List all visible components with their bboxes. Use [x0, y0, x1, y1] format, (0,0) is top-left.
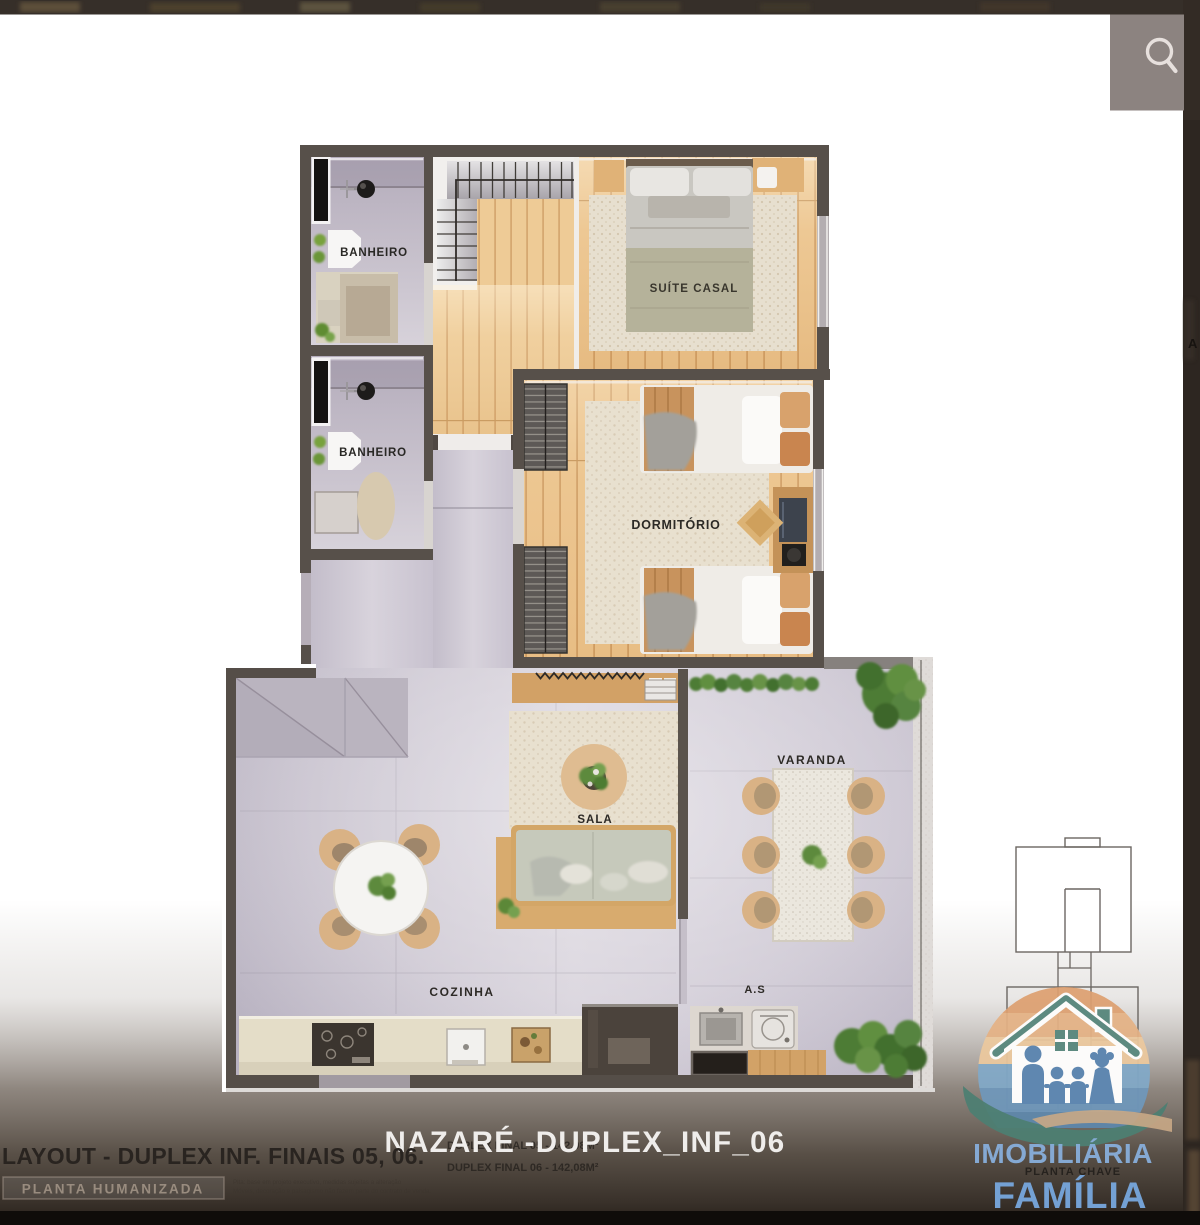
svg-text:BANHEIRO: BANHEIRO — [339, 447, 407, 459]
svg-text:Plta: base em projeto executiv: Plta: base em projeto executivo, medidas… — [233, 1179, 402, 1186]
svg-text:Móveis, decoração e paisagismo: Móveis, decoração e paisagismo não fazem… — [233, 1188, 431, 1195]
svg-text:VARANDA: VARANDA — [777, 753, 847, 767]
svg-text:SALA: SALA — [577, 814, 612, 826]
svg-text:NAZARÉ -DUPLEX_INF_06: NAZARÉ -DUPLEX_INF_06 — [384, 1125, 785, 1159]
svg-text:LAYOUT - DUPLEX INF. FINAIS 05: LAYOUT - DUPLEX INF. FINAIS 05, 06. — [2, 1143, 424, 1169]
svg-text:BANHEIRO: BANHEIRO — [340, 247, 408, 259]
svg-text:PLANTA HUMANIZADA: PLANTA HUMANIZADA — [22, 1182, 204, 1197]
svg-text:DORMITÓRIO: DORMITÓRIO — [631, 517, 720, 532]
svg-text:A.S: A.S — [744, 984, 765, 996]
svg-text:FAMÍLIA: FAMÍLIA — [993, 1175, 1148, 1216]
svg-text:DUPLEX FINAL 06 - 142,08M²: DUPLEX FINAL 06 - 142,08M² — [447, 1162, 599, 1174]
svg-text:IMOBILIÁRIA: IMOBILIÁRIA — [973, 1138, 1153, 1169]
svg-text:A: A — [1188, 336, 1198, 351]
svg-text:SUÍTE CASAL: SUÍTE CASAL — [650, 282, 739, 295]
svg-text:COZINHA: COZINHA — [429, 985, 494, 999]
